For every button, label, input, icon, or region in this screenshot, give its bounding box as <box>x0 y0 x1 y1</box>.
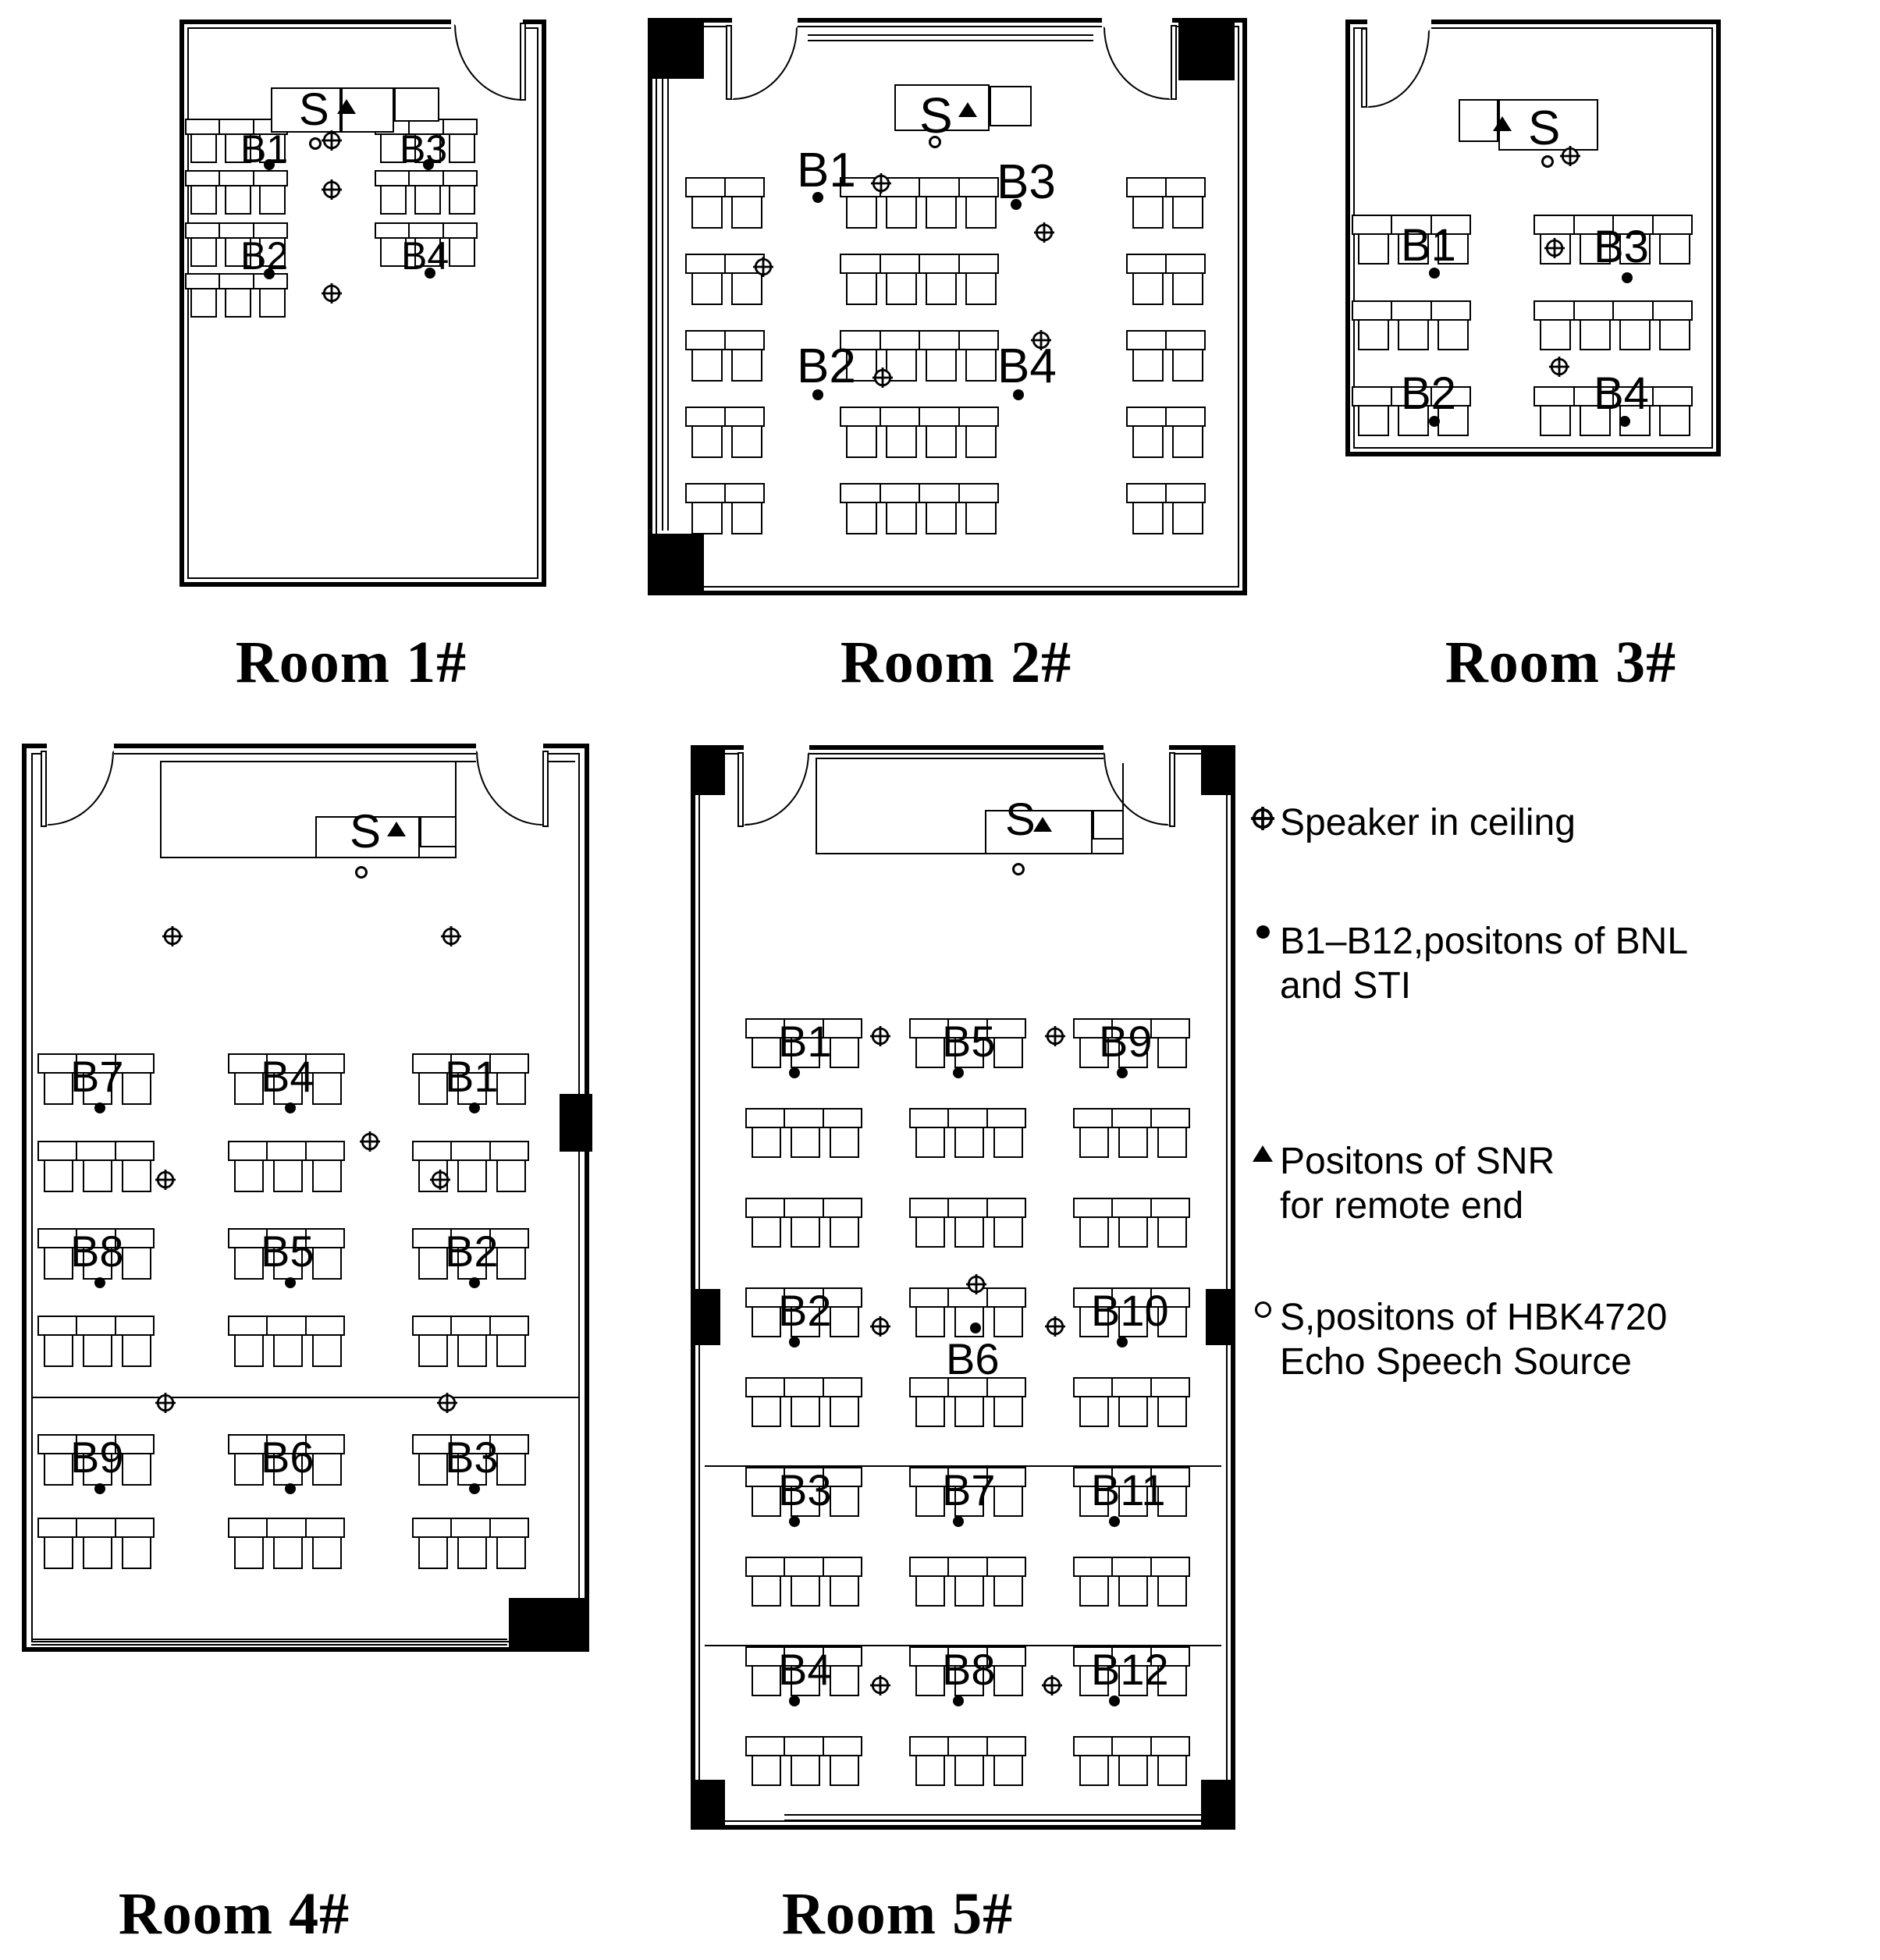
desk-table <box>37 1141 155 1161</box>
room-2-source-label: S <box>919 91 953 140</box>
door-leaf <box>542 751 549 827</box>
ceiling-speaker-icon <box>360 1131 380 1152</box>
desk-chair <box>234 1072 264 1105</box>
desk-cell <box>1353 388 1392 405</box>
room-4-column-block <box>560 1094 592 1152</box>
desk-cell <box>1075 1738 1113 1755</box>
desk-table <box>840 483 999 503</box>
door-leaf <box>726 25 732 100</box>
room-5-wall-line <box>784 1814 1202 1816</box>
desk-cell <box>988 1558 1025 1575</box>
desk-chair <box>752 1665 781 1696</box>
desk-cell <box>414 1317 452 1334</box>
bnl-dot-icon <box>970 1323 981 1333</box>
desk-table <box>745 1108 862 1128</box>
room-2-column-block <box>1178 20 1235 80</box>
desk-cell <box>77 1142 116 1159</box>
desk-chair <box>846 196 877 229</box>
desk-chair <box>1358 319 1389 350</box>
desk-cell <box>949 1558 987 1575</box>
desk-chair <box>965 502 997 534</box>
room-2-lectern <box>990 86 1032 126</box>
desk-table <box>37 1316 155 1336</box>
measurement-point-label: B2 <box>778 1289 832 1333</box>
desk-chair <box>752 1216 781 1248</box>
desk-cell <box>491 1142 528 1159</box>
desk-chair <box>954 1755 984 1786</box>
desk-table <box>1126 254 1206 274</box>
bnl-dot-icon <box>94 1102 105 1113</box>
desk-cell <box>1152 1558 1189 1575</box>
snr-triangle-icon <box>337 99 356 114</box>
desk-chair <box>886 502 917 534</box>
desk-cell <box>785 1199 823 1216</box>
desk-chair <box>1172 196 1203 229</box>
desk-cell <box>187 224 220 237</box>
desk-chair <box>926 196 957 229</box>
desk-chair <box>496 1247 526 1280</box>
measurement-point-label: B12 <box>1091 1648 1169 1692</box>
desk-chair <box>846 272 877 305</box>
room-5-column-block <box>692 747 725 795</box>
desk-table <box>909 1108 1026 1128</box>
desk-chair <box>915 1216 945 1248</box>
desk-table <box>745 1736 862 1756</box>
desk-chair <box>926 425 957 458</box>
measurement-point-label: B7 <box>70 1055 124 1099</box>
desk-chair <box>886 425 917 458</box>
desk-chair <box>44 1159 73 1192</box>
ceiling-speaker-icon <box>437 1393 457 1413</box>
room-5-column-block <box>1206 1289 1235 1345</box>
desk-cell <box>747 1379 785 1396</box>
desk-chair <box>312 1159 342 1192</box>
desk-cell <box>687 179 726 196</box>
desk-cell <box>824 1379 861 1396</box>
bnl-dot-icon <box>94 1277 105 1288</box>
bnl-dot-icon <box>1117 1337 1128 1347</box>
desk-chair <box>225 288 251 318</box>
bnl-dot-icon <box>1109 1695 1120 1706</box>
desk-cell <box>988 1738 1025 1755</box>
desk-chair <box>791 1127 820 1158</box>
desk-table <box>1126 483 1206 503</box>
ceiling-speaker-icon <box>872 367 893 388</box>
desk-chair <box>691 425 723 458</box>
desk-cell <box>1128 179 1167 196</box>
desk-chair <box>190 185 217 215</box>
measurement-point-label: B8 <box>942 1648 996 1692</box>
desk-cell <box>949 1199 987 1216</box>
desk-chair <box>418 1247 448 1280</box>
room-5-wall-line <box>784 1820 1202 1821</box>
desk-table <box>1073 1198 1190 1218</box>
desk-cell <box>1392 302 1431 319</box>
ceiling-speaker-icon <box>430 1170 450 1190</box>
desk-chair <box>1079 1127 1109 1158</box>
desk-chair <box>846 425 877 458</box>
desk-cell <box>1128 408 1167 425</box>
desk-chair <box>965 196 997 229</box>
measurement-point-label: B4 <box>261 1055 315 1099</box>
desk-cell <box>1152 1020 1189 1037</box>
desk-cell <box>824 1558 861 1575</box>
measurement-point-label: B1 <box>778 1020 832 1063</box>
desk-cell <box>1128 255 1167 272</box>
desk-chair <box>122 1453 151 1486</box>
snr-triangle-icon <box>1246 1145 1280 1162</box>
room-5-source-label: S <box>1005 797 1036 843</box>
desk-cell <box>911 1199 949 1216</box>
desk-chair <box>752 1037 781 1068</box>
desk-chair <box>273 1536 303 1569</box>
desk-cell <box>39 1519 77 1536</box>
desk-cell <box>187 120 220 133</box>
room-5-title: Room 5# <box>782 1880 1013 1948</box>
desk-cell <box>920 408 960 425</box>
desk-cell <box>77 1317 116 1334</box>
desk-cell <box>841 485 881 502</box>
desk-cell <box>841 408 881 425</box>
desk-cell <box>229 1317 268 1334</box>
room-2-column-block <box>649 534 704 593</box>
desk-table <box>375 170 478 186</box>
desk-chair <box>993 1216 1023 1248</box>
desk-chair <box>44 1453 73 1486</box>
desk-cell <box>229 1142 268 1159</box>
room-1-lectern <box>394 87 439 122</box>
desk-chair <box>1540 319 1571 350</box>
desk-chair <box>993 1665 1023 1696</box>
measurement-point-label: B3 <box>1594 225 1649 270</box>
desk-chair <box>752 1575 781 1607</box>
measurement-point-label: B2 <box>445 1230 499 1273</box>
legend-line: B1–B12,positons of BNL <box>1280 919 1688 964</box>
room-4-wall-line <box>31 1644 507 1646</box>
bnl-dot-icon <box>953 1695 964 1706</box>
door-leaf <box>41 751 47 827</box>
measurement-point-label: B4 <box>1594 371 1649 417</box>
desk-chair <box>1157 1396 1187 1427</box>
desk-chair <box>752 1396 781 1427</box>
desk-chair <box>1118 1755 1148 1786</box>
room-2-column-block <box>649 20 704 79</box>
snr-triangle-icon <box>387 822 406 836</box>
desk-chair <box>1157 1037 1187 1068</box>
bnl-dot-icon <box>1013 389 1024 400</box>
desk-chair <box>312 1247 342 1280</box>
desk-chair <box>993 1486 1023 1517</box>
desk-cell <box>747 1110 785 1127</box>
desk-cell <box>726 179 763 196</box>
desk-cell <box>920 332 960 349</box>
desk-chair <box>190 237 217 267</box>
desk-cell <box>960 408 998 425</box>
desk-chair <box>830 1575 859 1607</box>
desk-chair <box>965 272 997 305</box>
measurement-point-label: B7 <box>942 1468 996 1512</box>
desk-cell <box>1075 1110 1113 1127</box>
desk-cell <box>1654 388 1692 405</box>
desk-chair <box>273 1159 303 1192</box>
desk-cell <box>988 1289 1025 1306</box>
desk-chair <box>234 1334 264 1367</box>
desk-chair <box>457 1159 487 1192</box>
room-5-column-block <box>1201 747 1234 795</box>
desk-chair <box>259 288 286 318</box>
desk-cell <box>1167 485 1204 502</box>
desk-cell <box>747 1199 785 1216</box>
desk-chair <box>234 1536 264 1569</box>
ceiling-speaker-icon <box>155 1393 176 1413</box>
desk-table <box>685 177 765 197</box>
desk-chair <box>926 272 957 305</box>
desk-chair <box>731 196 762 229</box>
measurement-point-label: B3 <box>997 158 1056 207</box>
bnl-dot-icon <box>812 389 823 400</box>
desk-chair <box>1172 272 1203 305</box>
desk-cell <box>307 1317 343 1334</box>
desk-chair <box>915 1486 945 1517</box>
room-4-lectern <box>420 816 457 847</box>
desk-chair <box>83 1334 112 1367</box>
legend-line: and STI <box>1280 964 1688 1008</box>
desk-chair <box>1157 1127 1187 1158</box>
source-circle-icon <box>929 136 941 148</box>
room-5-column-block <box>1201 1780 1234 1828</box>
bnl-dot-icon <box>425 268 435 279</box>
measurement-point-label: B3 <box>778 1468 832 1512</box>
desk-table <box>745 1557 862 1577</box>
desk-cell <box>1535 388 1575 405</box>
desk-chair <box>915 1037 945 1068</box>
desk-chair <box>691 196 723 229</box>
desk-cell <box>920 485 960 502</box>
legend-line: Speaker in ceiling <box>1280 801 1576 845</box>
desk-table <box>909 1557 1026 1577</box>
source-circle-icon <box>309 137 322 150</box>
desk-chair <box>44 1536 73 1569</box>
desk-cell <box>452 1317 490 1334</box>
legend-item-bnl-positions: B1–B12,positons of BNL and STI <box>1246 919 1688 1008</box>
desk-chair <box>915 1396 945 1427</box>
desk-chair <box>830 1216 859 1248</box>
desk-cell <box>376 172 410 185</box>
desk-chair <box>1118 1216 1148 1248</box>
desk-chair <box>1157 1216 1187 1248</box>
desk-cell <box>726 408 763 425</box>
desk-cell <box>1113 1558 1151 1575</box>
desk-cell <box>960 332 998 349</box>
desk-table <box>685 483 765 503</box>
desk-cell <box>911 1289 949 1306</box>
desk-cell <box>1113 1379 1151 1396</box>
desk-cell <box>841 255 881 272</box>
desk-chair <box>915 1755 945 1786</box>
desk-cell <box>1152 1199 1189 1216</box>
desk-chair <box>1172 349 1203 382</box>
desk-chair <box>44 1072 73 1105</box>
room-4-title: Room 4# <box>119 1880 350 1948</box>
desk-chair <box>731 502 762 534</box>
desk-chair <box>691 272 723 305</box>
desk-chair <box>1079 1216 1109 1248</box>
bnl-dot-icon <box>789 1516 800 1527</box>
measurement-point-label: B9 <box>70 1436 124 1479</box>
bnl-dot-icon <box>285 1277 296 1288</box>
desk-cell <box>1113 1199 1151 1216</box>
desk-chair <box>926 349 957 382</box>
desk-chair <box>915 1127 945 1158</box>
bnl-dot-icon <box>1011 199 1022 210</box>
desk-chair <box>691 502 723 534</box>
bnl-dot-icon <box>812 192 823 203</box>
ceiling-speaker-icon <box>1544 238 1565 258</box>
measurement-point-label: B2 <box>797 343 856 391</box>
legend-line: Echo Speech Source <box>1280 1340 1667 1384</box>
room-2-wall-line <box>808 34 1093 36</box>
legend-text: Speaker in ceiling <box>1280 801 1576 845</box>
desk-chair <box>1659 405 1690 436</box>
desk-cell <box>726 485 763 502</box>
desk-chair <box>830 1396 859 1427</box>
legend-item-ceiling-speaker: Speaker in ceiling <box>1246 801 1576 845</box>
desk-table <box>1126 330 1206 350</box>
desk-chair <box>965 425 997 458</box>
desk-chair <box>846 502 877 534</box>
desk-cell <box>268 1142 306 1159</box>
desk-table <box>412 1316 529 1336</box>
desk-cell <box>1075 1379 1113 1396</box>
desk-chair <box>496 1536 526 1569</box>
room-4-aisle-line <box>31 1397 578 1398</box>
source-circle-icon <box>1012 863 1025 875</box>
desk-cell <box>116 1519 153 1536</box>
ceiling-speaker-icon <box>1246 807 1280 830</box>
desk-chair <box>457 1536 487 1569</box>
measurement-point-label: B6 <box>261 1436 315 1479</box>
door-leaf <box>1169 752 1175 827</box>
ceiling-speaker-icon <box>1045 1026 1065 1046</box>
door-leaf <box>737 752 744 827</box>
desk-chair <box>449 133 475 163</box>
desk-chair <box>496 1453 526 1486</box>
bnl-dot-icon <box>1622 272 1633 283</box>
desk-chair <box>691 349 723 382</box>
desk-chair <box>954 1306 984 1337</box>
ceiling-speaker-icon <box>871 173 891 194</box>
desk-chair <box>965 349 997 382</box>
desk-chair <box>1358 233 1389 265</box>
bnl-dot-icon <box>1429 416 1440 427</box>
desk-chair <box>752 1306 781 1337</box>
desk-table <box>412 1518 529 1538</box>
desk-chair <box>312 1536 342 1569</box>
measurement-point-label: B1 <box>445 1055 499 1099</box>
desk-table <box>840 254 999 274</box>
desk-chair <box>259 185 286 215</box>
bnl-dot-icon <box>423 159 434 170</box>
bnl-dot-icon <box>1117 1067 1128 1078</box>
desk-table <box>745 1198 862 1218</box>
desk-chair <box>83 1536 112 1569</box>
desk-chair <box>1659 319 1690 350</box>
room-4-source-label: S <box>350 808 381 855</box>
desk-chair <box>1118 1396 1148 1427</box>
desk-cell <box>444 120 476 133</box>
desk-chair <box>954 1575 984 1607</box>
desk-table <box>745 1377 862 1397</box>
desk-chair <box>496 1072 526 1105</box>
desk-chair <box>83 1159 112 1192</box>
desk-cell <box>687 332 726 349</box>
desk-cell <box>1167 255 1204 272</box>
desk-cell <box>187 275 220 288</box>
desk-cell <box>229 1519 268 1536</box>
room-2-wall-line <box>662 78 663 531</box>
bnl-dot-icon <box>469 1483 480 1494</box>
desk-cell <box>1113 1110 1151 1127</box>
measurement-point-label: B5 <box>942 1020 996 1063</box>
ceiling-speaker-icon <box>1045 1316 1065 1337</box>
desk-table <box>412 1141 529 1161</box>
desk-cell <box>1654 302 1692 319</box>
legend-item-snr-positions: Positons of SNR for remote end <box>1246 1139 1555 1228</box>
desk-cell <box>307 1519 343 1536</box>
desk-cell <box>988 1199 1025 1216</box>
desk-chair <box>993 1396 1023 1427</box>
desk-chair <box>190 288 217 318</box>
ceiling-speaker-icon <box>870 1026 890 1046</box>
desk-cell <box>1167 332 1204 349</box>
measurement-point-label: B2 <box>240 236 288 275</box>
desk-cell <box>949 1110 987 1127</box>
desk-chair <box>449 185 475 215</box>
desk-chair <box>418 1334 448 1367</box>
desk-chair <box>731 349 762 382</box>
desk-cell <box>452 1142 490 1159</box>
desk-chair <box>993 1755 1023 1786</box>
room-2-wall-line <box>808 40 1093 41</box>
measurement-point-label: B1 <box>1401 223 1456 268</box>
desk-chair <box>1438 319 1469 350</box>
desk-chair <box>234 1453 264 1486</box>
desk-cell <box>911 1110 949 1127</box>
desk-chair <box>122 1072 151 1105</box>
legend-line: Positons of SNR <box>1280 1139 1555 1184</box>
desk-cell <box>1152 1738 1189 1755</box>
desk-cell <box>1353 302 1392 319</box>
desk-cell <box>1075 1199 1113 1216</box>
desk-table <box>685 407 765 427</box>
desk-chair <box>1172 425 1203 458</box>
desk-cell <box>960 485 998 502</box>
desk-cell <box>1128 485 1167 502</box>
desk-cell <box>39 1142 77 1159</box>
room-3-source-label: S <box>1528 105 1560 153</box>
desk-chair <box>312 1334 342 1367</box>
desk-table <box>1126 177 1206 197</box>
desk-table <box>228 1141 345 1161</box>
desk-table <box>1073 1377 1190 1397</box>
desk-cell <box>410 172 443 185</box>
desk-table <box>228 1518 345 1538</box>
room-4-wall-line <box>31 1639 507 1640</box>
desk-table <box>37 1518 155 1538</box>
desk-chair <box>312 1453 342 1486</box>
bnl-dot-icon <box>1246 925 1280 939</box>
measurement-point-label: B3 <box>445 1436 499 1479</box>
